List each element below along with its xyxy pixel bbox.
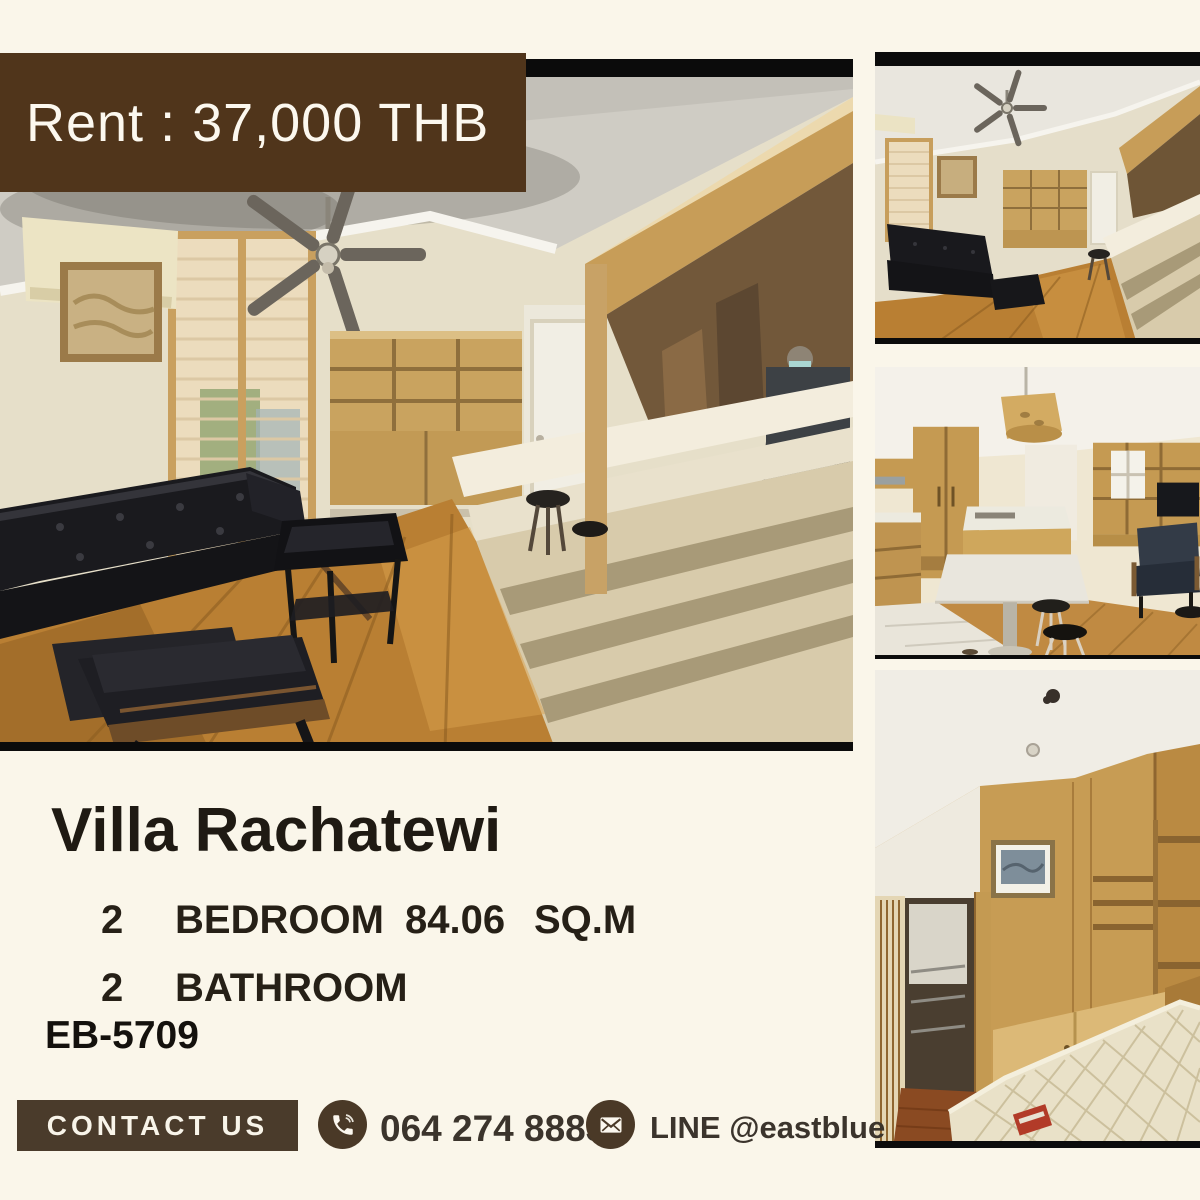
bathroom-count: 2 (101, 967, 123, 1009)
bedroom-illustration (875, 670, 1200, 1148)
envelope-icon[interactable] (586, 1100, 635, 1149)
bedroom-art-frame (991, 840, 1055, 898)
bathroom-label: BATHROOM (175, 967, 408, 1009)
shelf-unit-small (1003, 170, 1087, 248)
door-small (1091, 172, 1117, 244)
coffee-table-small (990, 274, 1045, 310)
bathroom-spec-row: 2 BATHROOM (0, 967, 870, 1013)
tv (1157, 483, 1199, 517)
photo-living-room-angle (875, 52, 1200, 344)
kitchen-illustration (875, 367, 1200, 659)
bedroom-spec-row: 2 BEDROOM 84.06 SQ.M (0, 899, 870, 945)
photo-kitchen-dining (875, 367, 1200, 659)
rent-label: Rent : 37,000 THB (26, 92, 489, 154)
area-unit: SQ.M (534, 899, 636, 941)
wall-art-frame (60, 262, 162, 362)
photo-bedroom (875, 670, 1200, 1148)
contact-us-button[interactable]: CONTACT US (17, 1100, 298, 1151)
area-value: 84.06 (405, 899, 505, 941)
smoke-detector (1027, 744, 1039, 756)
phone-icon[interactable] (318, 1100, 367, 1149)
listing-flyer: Rent : 37,000 THB (0, 0, 1200, 1200)
line-handle[interactable]: LINE @eastblue (650, 1110, 885, 1146)
bedroom-count: 2 (101, 899, 123, 941)
rent-banner: Rent : 37,000 THB (0, 53, 526, 192)
phone-number[interactable]: 064 274 8883 (380, 1108, 606, 1150)
page-title: Villa Rachatewi (51, 800, 501, 862)
listing-ref-code: EB-5709 (45, 1014, 199, 1058)
bedroom-label: BEDROOM (175, 899, 384, 941)
wall-art-small (937, 156, 977, 198)
living-room-angle-illustration (875, 52, 1200, 344)
